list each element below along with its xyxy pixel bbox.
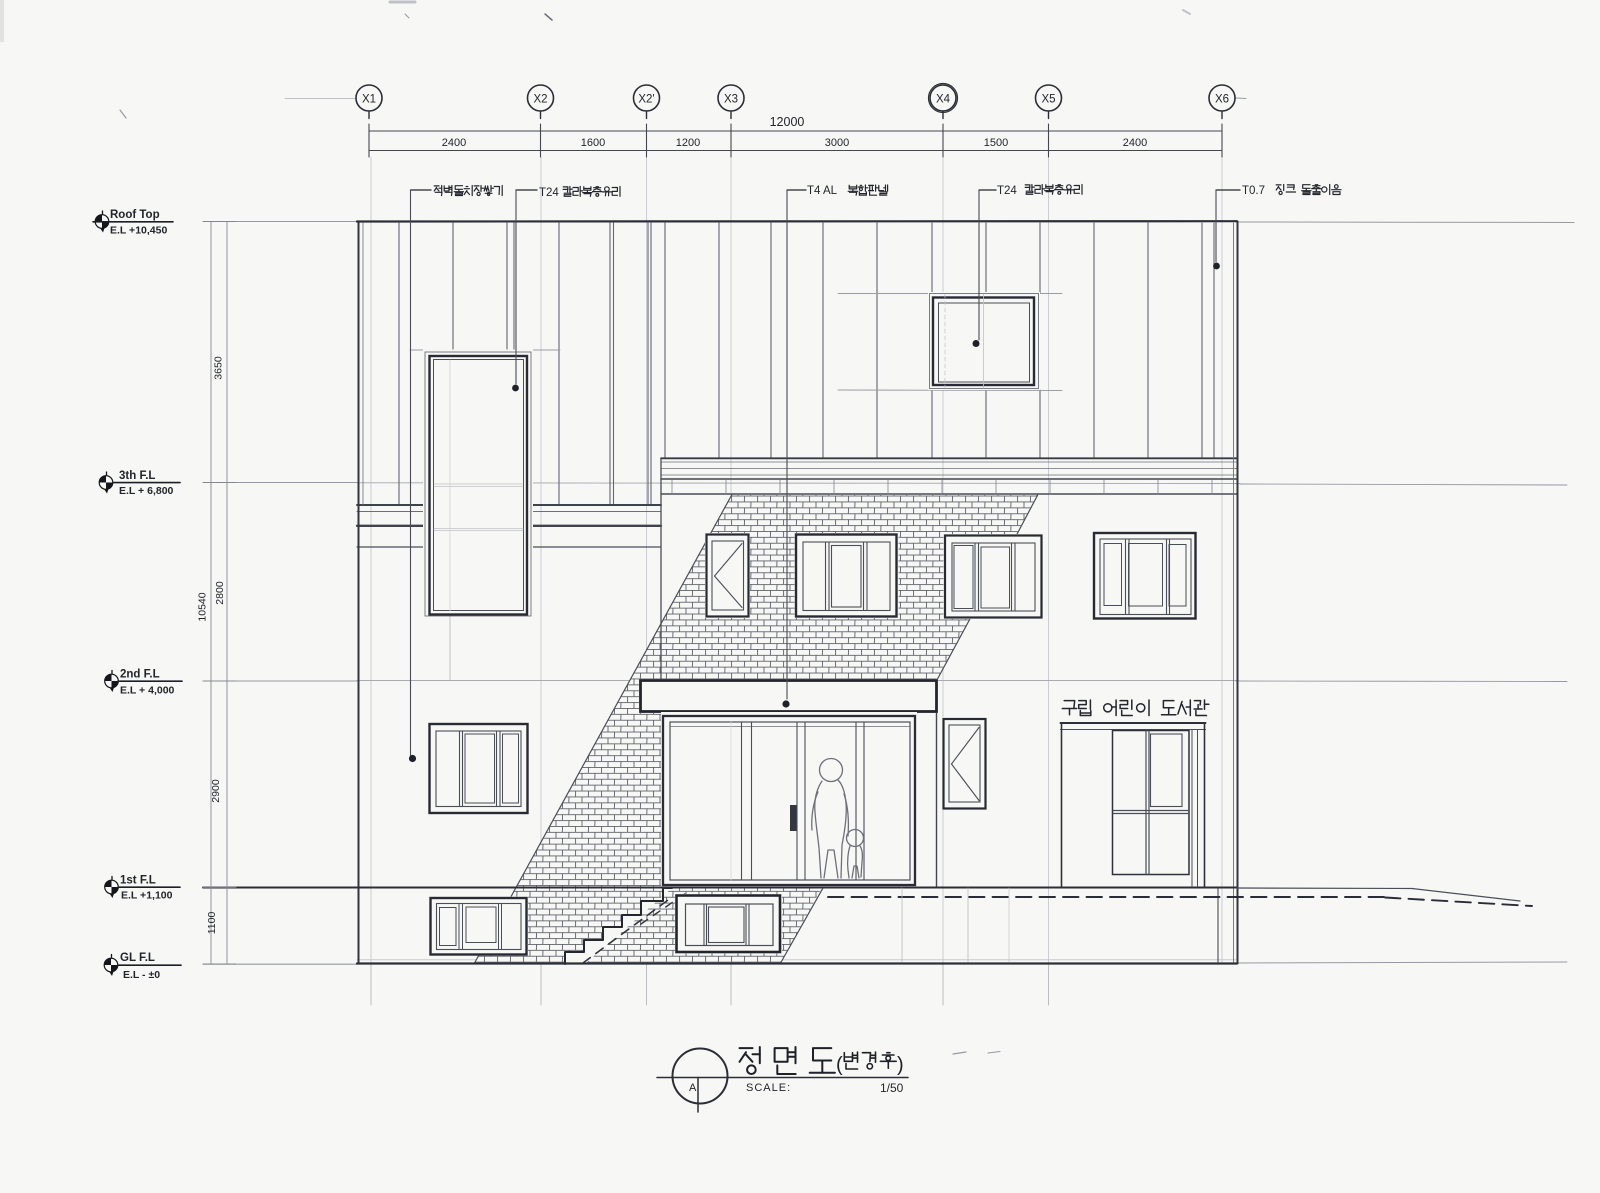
svg-text:1st F.L: 1st F.L <box>120 875 156 887</box>
svg-text:1200: 1200 <box>676 137 700 149</box>
svg-text:3000: 3000 <box>825 137 849 149</box>
svg-text:T4 AL: T4 AL <box>807 185 838 197</box>
svg-text:1/50: 1/50 <box>880 1081 904 1095</box>
svg-text:T0.7: T0.7 <box>1242 185 1265 197</box>
svg-text:1100: 1100 <box>206 912 218 935</box>
svg-text:T24: T24 <box>997 185 1017 197</box>
svg-text:X6: X6 <box>1215 94 1229 106</box>
svg-text:Roof Top: Roof Top <box>110 209 160 221</box>
svg-text:E.L + 6,800: E.L + 6,800 <box>119 485 174 497</box>
svg-text:X2: X2 <box>533 94 547 106</box>
svg-text:2800: 2800 <box>214 581 226 605</box>
svg-text:(: ( <box>836 1054 843 1076</box>
svg-text:GL F.L: GL F.L <box>120 952 155 964</box>
svg-text:A: A <box>689 1082 697 1094</box>
svg-text:3th F.L: 3th F.L <box>119 470 155 482</box>
svg-text:12000: 12000 <box>770 115 805 129</box>
svg-text:E.L +10,450: E.L +10,450 <box>110 225 167 237</box>
svg-text:1500: 1500 <box>984 137 1008 149</box>
svg-text:): ) <box>897 1054 904 1076</box>
svg-text:2900: 2900 <box>210 779 222 803</box>
svg-text:3650: 3650 <box>213 356 225 380</box>
svg-text:E.L +1,100: E.L +1,100 <box>121 890 173 902</box>
svg-text:E.L - ±0: E.L - ±0 <box>123 969 160 981</box>
svg-text:X2': X2' <box>638 94 654 106</box>
svg-text:X5: X5 <box>1041 94 1055 106</box>
svg-text:2400: 2400 <box>442 137 466 149</box>
svg-text:2400: 2400 <box>1123 137 1147 149</box>
svg-text:10540: 10540 <box>197 592 209 621</box>
svg-text:X4: X4 <box>936 94 951 106</box>
svg-text:X3: X3 <box>724 94 738 106</box>
svg-text:X1: X1 <box>362 94 376 106</box>
svg-text:E.L + 4,000: E.L + 4,000 <box>120 685 175 697</box>
svg-text:SCALE:: SCALE: <box>746 1082 791 1094</box>
svg-text:T24: T24 <box>539 187 559 199</box>
svg-text:2nd F.L: 2nd F.L <box>120 669 160 681</box>
svg-text:1600: 1600 <box>581 137 605 149</box>
